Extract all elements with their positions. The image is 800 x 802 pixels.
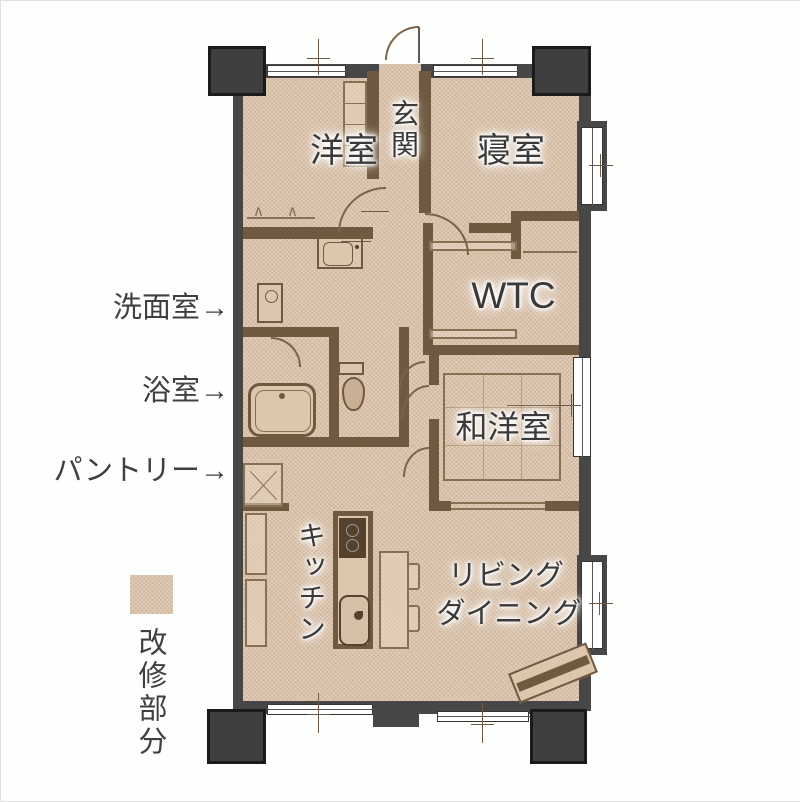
bathtub xyxy=(248,383,316,437)
window-top-right xyxy=(433,65,518,77)
tatami-line xyxy=(445,445,559,446)
window-glass-line xyxy=(268,71,347,72)
room-label-wtc: WTC xyxy=(456,277,571,316)
sliding-door-track xyxy=(451,508,545,510)
dimension-mark xyxy=(600,154,601,177)
room-label-living-line1: リビング xyxy=(431,561,581,591)
right-arrow-icon: → xyxy=(200,455,229,487)
closet-pole-bedroom xyxy=(523,251,577,253)
bathtub-drain xyxy=(279,393,285,399)
dimension-mark xyxy=(471,58,494,59)
dimension-mark xyxy=(482,703,483,743)
dimension-mark xyxy=(471,724,494,725)
tatami-line xyxy=(445,407,559,408)
washing-machine xyxy=(257,283,283,323)
dimension-mark xyxy=(307,58,330,59)
kitchen-sink xyxy=(339,595,370,646)
chair xyxy=(407,605,420,632)
room-label-entrance: 玄関 xyxy=(382,75,418,185)
hanger-icon: ∧ xyxy=(287,204,298,219)
wall-bedroom-closet-left xyxy=(511,211,521,259)
window-glass-line xyxy=(434,71,519,72)
toilet-bowl xyxy=(342,377,365,411)
burner xyxy=(346,539,359,552)
entrance-door-arc xyxy=(385,26,419,60)
window-glass-line xyxy=(582,358,583,458)
wall-japanese-room-south-left xyxy=(429,501,451,511)
chair xyxy=(407,563,420,590)
window-glass-line xyxy=(438,716,530,717)
pillar-top-left xyxy=(208,46,266,96)
window-glass-line xyxy=(268,709,374,710)
outer-wall-bottom-step xyxy=(373,701,419,727)
window-bottom-right xyxy=(437,711,529,722)
faucet xyxy=(354,611,363,620)
callout-bathroom-label: 浴室 xyxy=(142,375,200,407)
pillar-bottom-left xyxy=(207,709,266,764)
room-label-japanese-western-room: 和洋室 xyxy=(431,411,576,445)
legend-swatch xyxy=(130,575,173,614)
wall-japanese-room-west-upper xyxy=(429,355,439,385)
dimension-mark xyxy=(307,714,330,715)
pillar-top-right xyxy=(532,46,591,96)
floor-plan-canvas: ∧ ∧ xyxy=(0,0,800,802)
dimension-mark xyxy=(599,592,600,615)
wtc-shelf-bottom xyxy=(429,329,517,339)
outer-wall-left xyxy=(233,91,243,713)
wall-entrance-right xyxy=(419,71,431,213)
wall-washroom-south xyxy=(243,327,337,337)
room-label-living-line2: ダイニング xyxy=(429,599,589,629)
callout-washroom: 洗面室→ xyxy=(41,284,229,326)
wall-wtc-south xyxy=(423,345,579,355)
window-top-left xyxy=(267,65,346,77)
dimension-mark xyxy=(318,693,319,733)
right-arrow-icon: → xyxy=(200,292,229,324)
vanity-bowl xyxy=(323,242,353,266)
kitchen-cabinet-lower xyxy=(245,579,267,647)
dining-counter-table xyxy=(379,551,409,649)
wall-japanese-room-south-right xyxy=(545,501,579,511)
right-arrow-icon: → xyxy=(200,375,229,407)
wall-toilet-west xyxy=(329,327,339,447)
washer-drum xyxy=(265,290,278,303)
pantry-shelf xyxy=(243,463,283,507)
burner xyxy=(346,524,359,537)
hanger-icon: ∧ xyxy=(253,204,264,219)
room-label-kitchen: キッチン xyxy=(289,517,325,649)
callout-bathroom: 浴室→ xyxy=(41,367,229,409)
wall-bedroom-closet-top xyxy=(511,211,579,221)
stove xyxy=(339,518,366,558)
callout-pantry: パントリー→ xyxy=(41,447,229,489)
callout-washroom-label: 洗面室 xyxy=(113,292,200,324)
dimension-mark xyxy=(318,39,319,75)
vanity-faucet-dot xyxy=(355,245,359,249)
dimension-mark xyxy=(589,603,613,604)
dimension-mark xyxy=(589,165,613,166)
wall-bedroom-south xyxy=(469,223,513,233)
pillar-bottom-right xyxy=(530,709,587,764)
sliding-door-track xyxy=(451,502,545,504)
dimension-mark xyxy=(482,39,483,75)
toilet-tank xyxy=(338,362,364,375)
kitchen-cabinet-upper xyxy=(245,513,267,575)
dimension-mark xyxy=(361,211,389,212)
window-glass-line xyxy=(592,128,593,206)
window-glass-line xyxy=(592,562,593,650)
wall-bath-south xyxy=(243,437,409,447)
callout-pantry-label: パントリー xyxy=(54,455,200,487)
dimension-mark xyxy=(507,405,581,406)
dimension-mark xyxy=(341,241,371,242)
room-label-bedroom: 寝室 xyxy=(441,134,581,170)
legend-label: 改修部分 xyxy=(137,627,171,775)
